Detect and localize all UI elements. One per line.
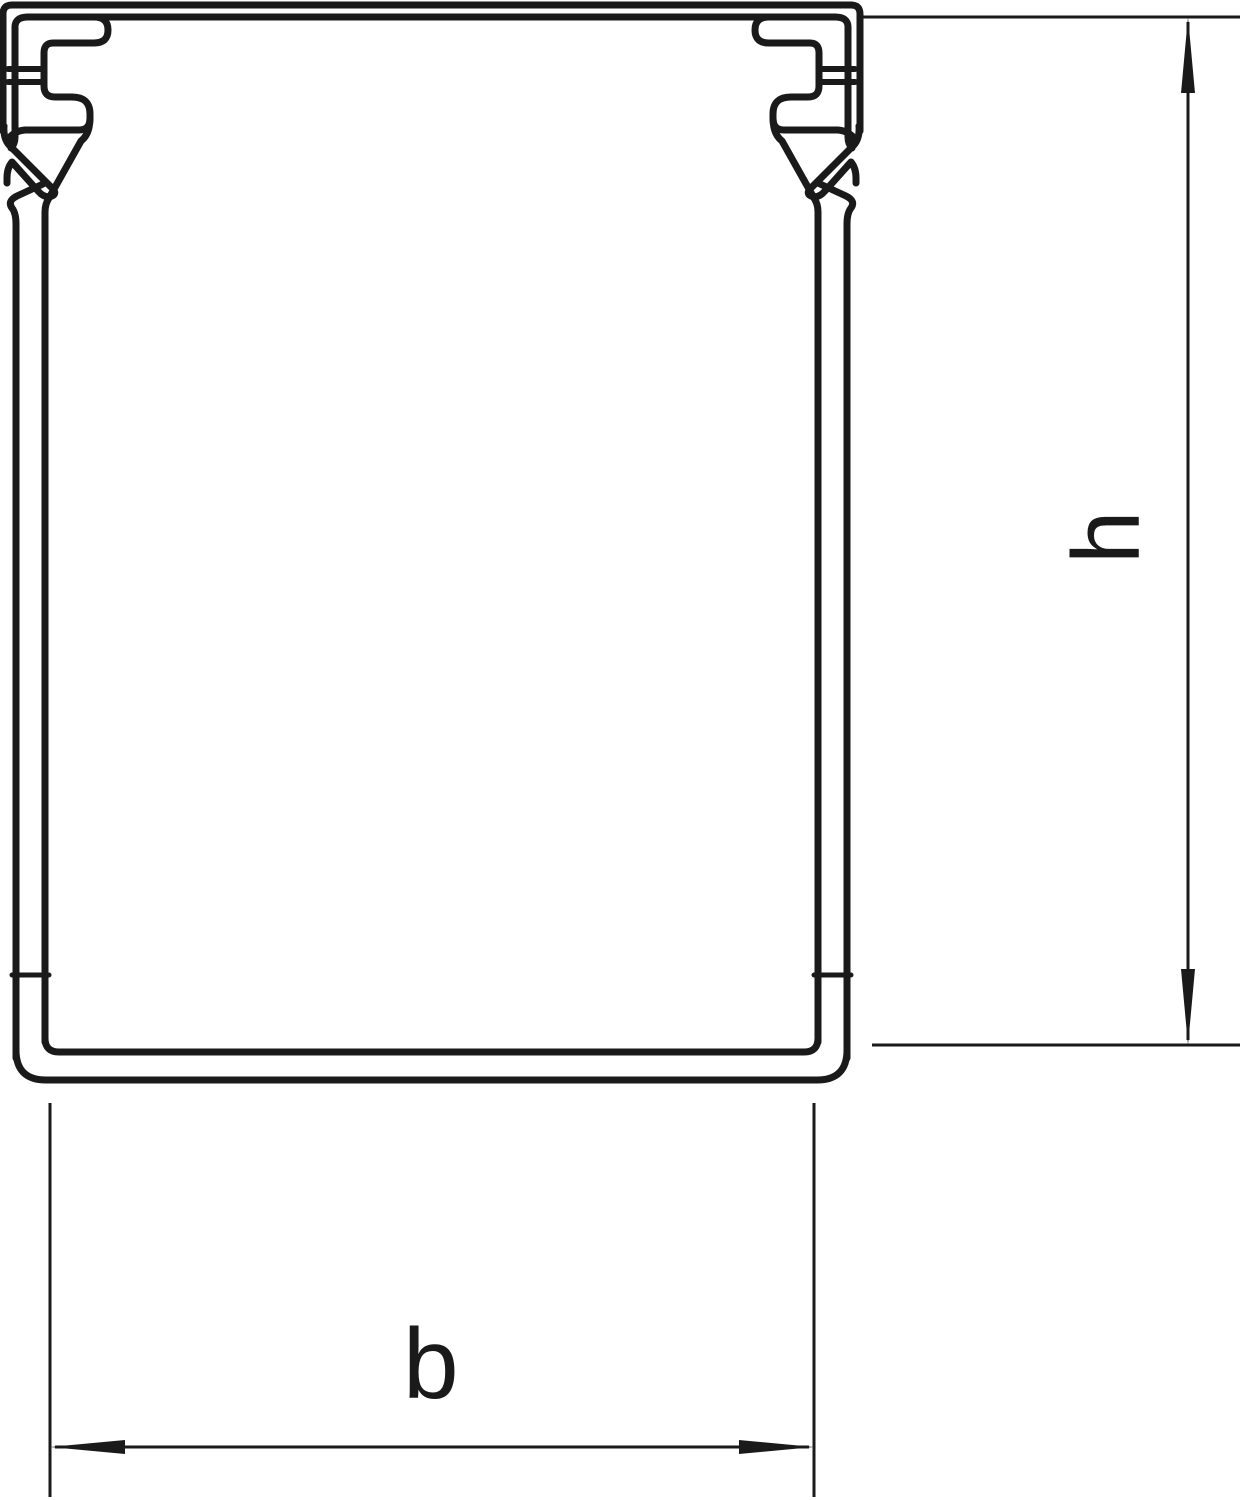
- height-dimension: h: [858, 17, 1240, 1045]
- drawing-canvas: h b: [0, 0, 1241, 1500]
- width-arrow-right-icon: [739, 1440, 814, 1454]
- cover-hook: [7, 43, 94, 141]
- width-dimension: b: [50, 1103, 814, 1497]
- inner-wall-line: [45, 118, 90, 1042]
- height-arrow-up-icon: [1181, 17, 1195, 93]
- duct-left-half: [3, 5, 108, 1058]
- width-dimension-label: b: [403, 1308, 459, 1420]
- height-dimension-label: h: [1053, 511, 1160, 564]
- clip-barb-outer-wall: [10, 184, 43, 1058]
- duct-profile-outline: [3, 5, 860, 1080]
- bottom-inner-edge: [45, 1038, 818, 1052]
- duct-right-half: [755, 5, 860, 1058]
- technical-drawing: h b: [0, 0, 1241, 1500]
- height-arrow-down-icon: [1181, 969, 1195, 1045]
- clip-finger-end: [94, 17, 108, 43]
- width-arrow-left-icon: [50, 1440, 125, 1454]
